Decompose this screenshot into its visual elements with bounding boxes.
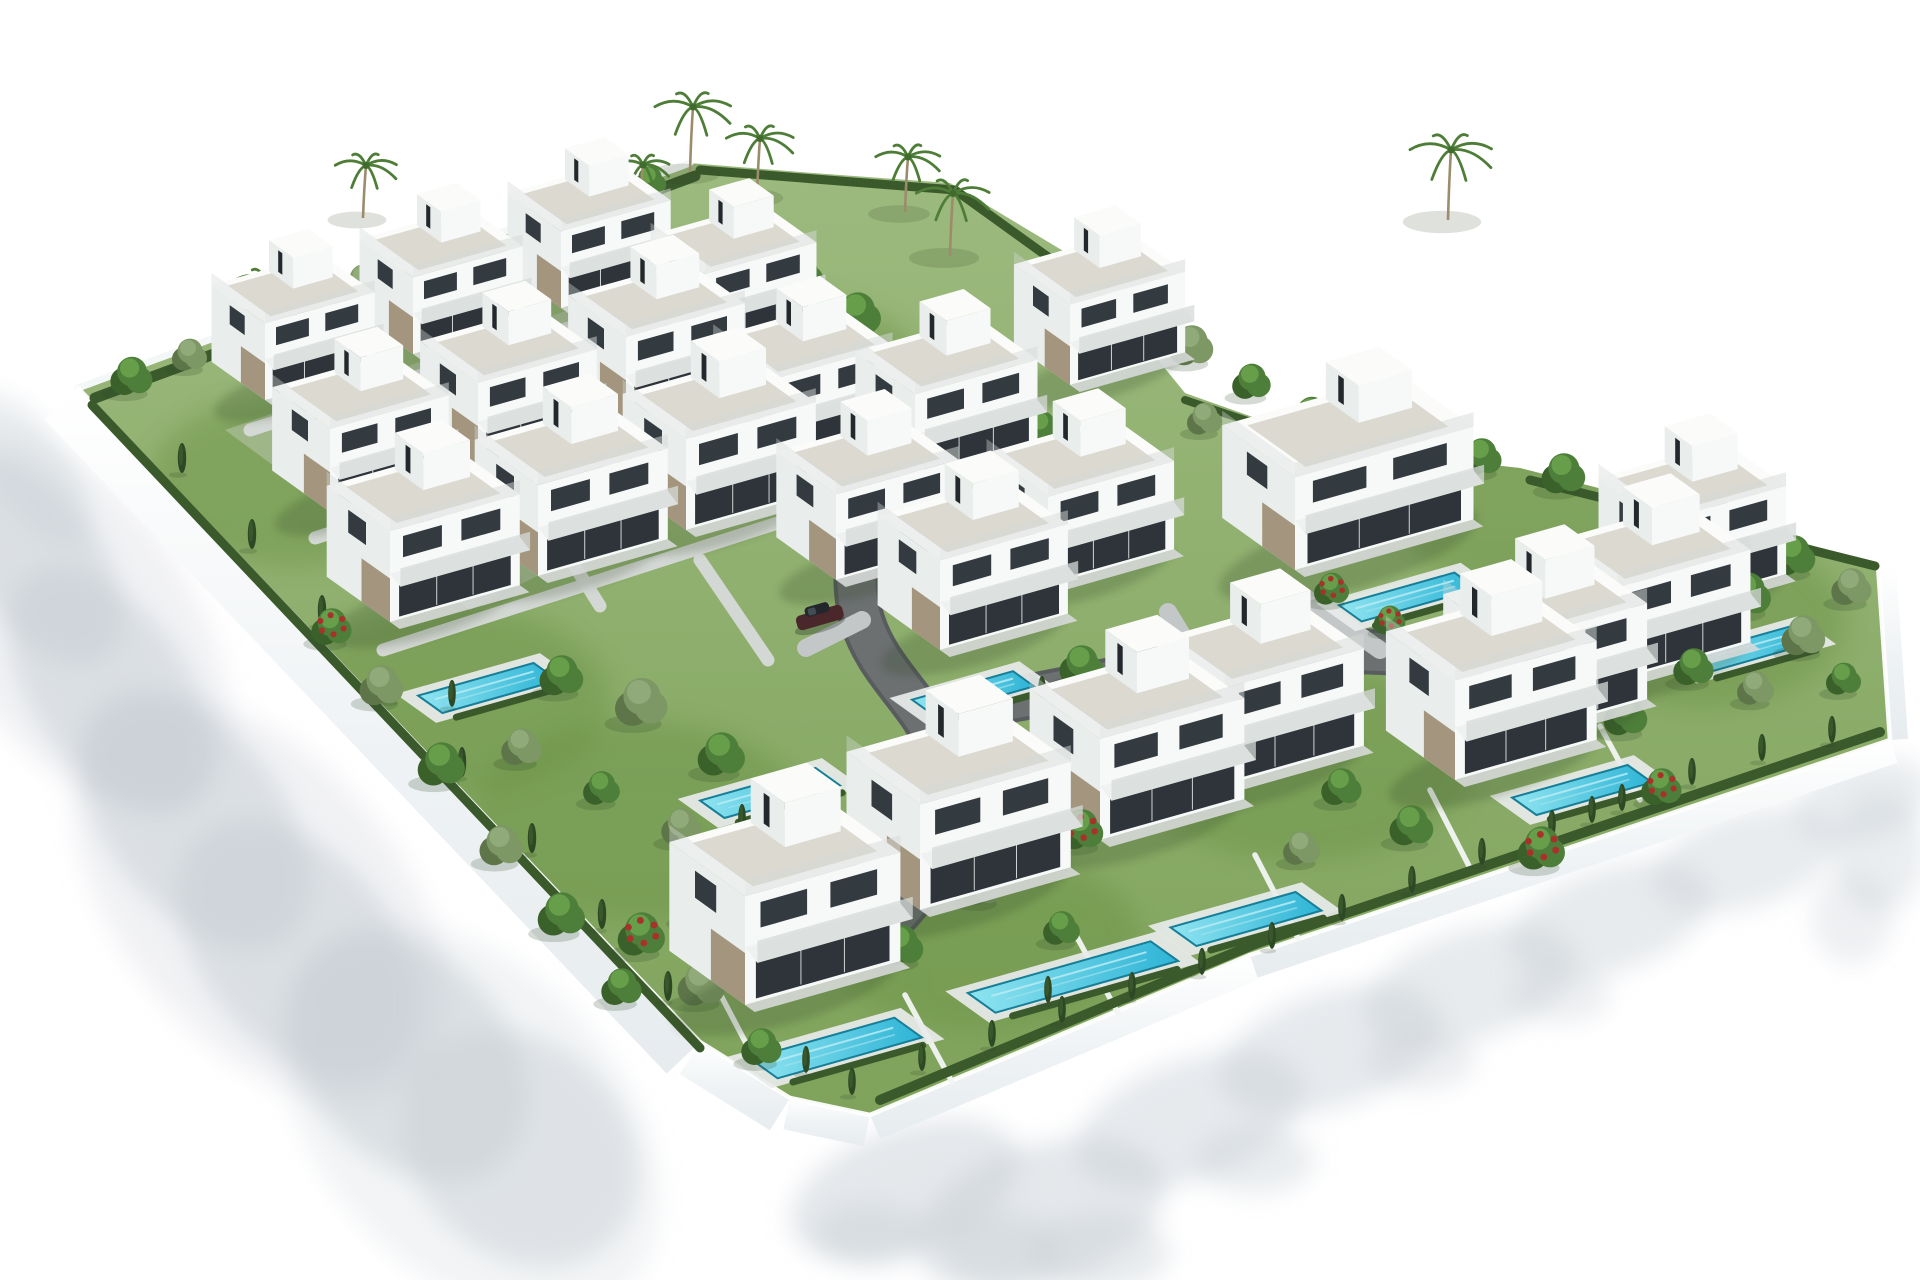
ellipse bbox=[989, 1021, 993, 1040]
flower bbox=[651, 922, 658, 929]
development-aerial-render bbox=[0, 0, 1920, 1280]
circle bbox=[1195, 404, 1211, 420]
ellipse bbox=[665, 973, 669, 994]
tree-shadow bbox=[1680, 784, 1696, 789]
stair-window bbox=[426, 204, 430, 229]
flower bbox=[1091, 828, 1098, 835]
tree-shadow bbox=[1610, 810, 1626, 815]
ellipse bbox=[1689, 759, 1693, 778]
circle bbox=[627, 680, 651, 704]
stair-window bbox=[1084, 228, 1088, 254]
stair-window bbox=[930, 313, 935, 340]
flower bbox=[625, 924, 632, 931]
flower bbox=[330, 631, 336, 637]
stair-window bbox=[1063, 413, 1068, 441]
flower bbox=[341, 625, 347, 631]
ellipse bbox=[249, 521, 253, 542]
flower bbox=[1537, 831, 1544, 838]
circle bbox=[757, 135, 764, 142]
flower bbox=[1649, 787, 1655, 793]
circle bbox=[845, 294, 867, 316]
stair-window bbox=[1675, 438, 1680, 466]
flower bbox=[1386, 608, 1391, 613]
render-canvas bbox=[0, 0, 1920, 1280]
circle bbox=[1241, 365, 1259, 383]
ellipse bbox=[599, 901, 603, 922]
tree-shadow bbox=[794, 1072, 810, 1077]
stair-window bbox=[1338, 375, 1344, 405]
ellipse bbox=[803, 1047, 807, 1066]
tree-shadow bbox=[169, 472, 187, 478]
flower bbox=[1671, 785, 1677, 791]
circle bbox=[1400, 807, 1420, 827]
circle bbox=[550, 657, 570, 677]
flower bbox=[1378, 613, 1383, 618]
ellipse bbox=[919, 1045, 923, 1064]
circle bbox=[1683, 650, 1701, 668]
tree-shadow bbox=[1470, 864, 1486, 869]
tree-shadow bbox=[1403, 211, 1481, 233]
circle bbox=[180, 340, 196, 356]
ellipse bbox=[1549, 811, 1553, 830]
cast-shadow bbox=[1812, 872, 1892, 964]
circle bbox=[1070, 647, 1090, 667]
flower bbox=[1527, 849, 1534, 856]
circle bbox=[1448, 147, 1455, 154]
ellipse bbox=[1129, 973, 1133, 992]
tree-shadow bbox=[1120, 998, 1136, 1003]
flower bbox=[1395, 611, 1400, 616]
circle bbox=[363, 162, 370, 169]
flower bbox=[637, 917, 644, 924]
circle bbox=[1834, 664, 1850, 680]
circle bbox=[1552, 455, 1572, 475]
ellipse bbox=[1199, 949, 1203, 968]
flower bbox=[640, 940, 647, 947]
tree-shadow bbox=[1820, 742, 1836, 747]
circle bbox=[1052, 913, 1069, 930]
ellipse bbox=[1409, 867, 1413, 886]
ellipse bbox=[449, 681, 453, 700]
stair-window bbox=[1117, 643, 1122, 675]
stair-window bbox=[764, 793, 770, 828]
stair-window bbox=[492, 304, 496, 331]
tree-shadow bbox=[909, 248, 979, 268]
tree-shadow bbox=[239, 548, 257, 554]
flower bbox=[1319, 581, 1325, 587]
ellipse bbox=[1045, 977, 1049, 996]
flower bbox=[319, 627, 325, 633]
tree-shadow bbox=[1190, 974, 1206, 979]
circle bbox=[611, 970, 629, 988]
flower bbox=[627, 935, 634, 942]
ellipse bbox=[1589, 797, 1593, 816]
flower bbox=[652, 933, 659, 940]
flower bbox=[1379, 620, 1384, 625]
stair-window bbox=[574, 158, 578, 183]
flower bbox=[328, 612, 334, 618]
flower bbox=[1338, 579, 1344, 585]
cast-shadow bbox=[1195, 1126, 1315, 1194]
cast-shadow bbox=[1510, 967, 1610, 1023]
tree-shadow bbox=[1400, 892, 1416, 897]
circle bbox=[429, 744, 451, 766]
cast-shadow bbox=[815, 1203, 925, 1267]
flower bbox=[1331, 593, 1337, 599]
ellipse bbox=[1479, 839, 1483, 858]
tree-shadow bbox=[980, 1046, 996, 1051]
tree-shadow bbox=[1330, 920, 1346, 925]
cast-shadow bbox=[1365, 1030, 1475, 1090]
tree-shadow bbox=[910, 1070, 926, 1075]
stair-window bbox=[787, 299, 792, 326]
tree-shadow bbox=[868, 205, 930, 223]
ellipse bbox=[179, 445, 183, 466]
flower bbox=[1339, 587, 1345, 593]
ellipse bbox=[1619, 785, 1623, 804]
circle bbox=[751, 1030, 769, 1048]
stair-window bbox=[278, 250, 282, 274]
circle bbox=[1746, 673, 1763, 690]
flower bbox=[1396, 619, 1401, 624]
tree-shadow bbox=[440, 706, 456, 711]
stair-window bbox=[702, 353, 707, 382]
flower bbox=[317, 618, 323, 624]
circle bbox=[490, 827, 510, 847]
circle bbox=[671, 810, 689, 828]
tree-shadow bbox=[1750, 760, 1766, 765]
stair-window bbox=[1472, 587, 1477, 619]
flower bbox=[1320, 589, 1326, 595]
tree-shadow bbox=[589, 928, 607, 934]
circle bbox=[950, 190, 957, 197]
circle bbox=[905, 154, 912, 161]
circle bbox=[1331, 770, 1349, 788]
circle bbox=[690, 104, 697, 111]
stair-window bbox=[640, 258, 644, 285]
ellipse bbox=[1059, 997, 1063, 1016]
ellipse bbox=[1339, 895, 1343, 914]
circle bbox=[1841, 570, 1859, 588]
ellipse bbox=[529, 825, 533, 846]
circle bbox=[370, 667, 390, 687]
flower bbox=[1328, 576, 1334, 582]
flower bbox=[1525, 838, 1532, 845]
stair-window bbox=[718, 200, 722, 225]
circle bbox=[549, 894, 571, 916]
tree-shadow bbox=[1036, 1002, 1052, 1007]
ellipse bbox=[1829, 717, 1833, 736]
circle bbox=[1792, 617, 1812, 637]
stair-window bbox=[344, 350, 348, 377]
flower bbox=[1080, 834, 1087, 841]
stair-window bbox=[1634, 499, 1639, 529]
tree-shadow bbox=[1580, 822, 1596, 827]
flower bbox=[1658, 772, 1664, 778]
circle bbox=[511, 730, 529, 748]
circle bbox=[640, 162, 647, 169]
flower bbox=[1669, 776, 1675, 782]
stair-window bbox=[955, 475, 960, 504]
ellipse bbox=[1269, 923, 1273, 942]
stair-window bbox=[554, 399, 559, 428]
tree-shadow bbox=[328, 212, 387, 229]
flower bbox=[1660, 791, 1666, 797]
flower bbox=[1540, 854, 1547, 861]
stair-window bbox=[406, 445, 411, 474]
flower bbox=[1551, 836, 1558, 843]
tree-shadow bbox=[840, 1094, 856, 1099]
circle bbox=[709, 734, 731, 756]
flower bbox=[339, 616, 345, 622]
ellipse bbox=[1759, 735, 1763, 754]
circle bbox=[592, 773, 609, 790]
ellipse bbox=[849, 1069, 853, 1088]
tree-shadow bbox=[1050, 1022, 1066, 1027]
circle bbox=[1292, 833, 1309, 850]
circle bbox=[120, 358, 139, 377]
stair-window bbox=[851, 413, 856, 440]
stair-window bbox=[938, 704, 944, 738]
flower bbox=[1552, 847, 1559, 854]
flower bbox=[1090, 818, 1097, 825]
tree-shadow bbox=[1260, 948, 1276, 953]
stair-window bbox=[1242, 595, 1247, 626]
flower bbox=[1647, 778, 1653, 784]
